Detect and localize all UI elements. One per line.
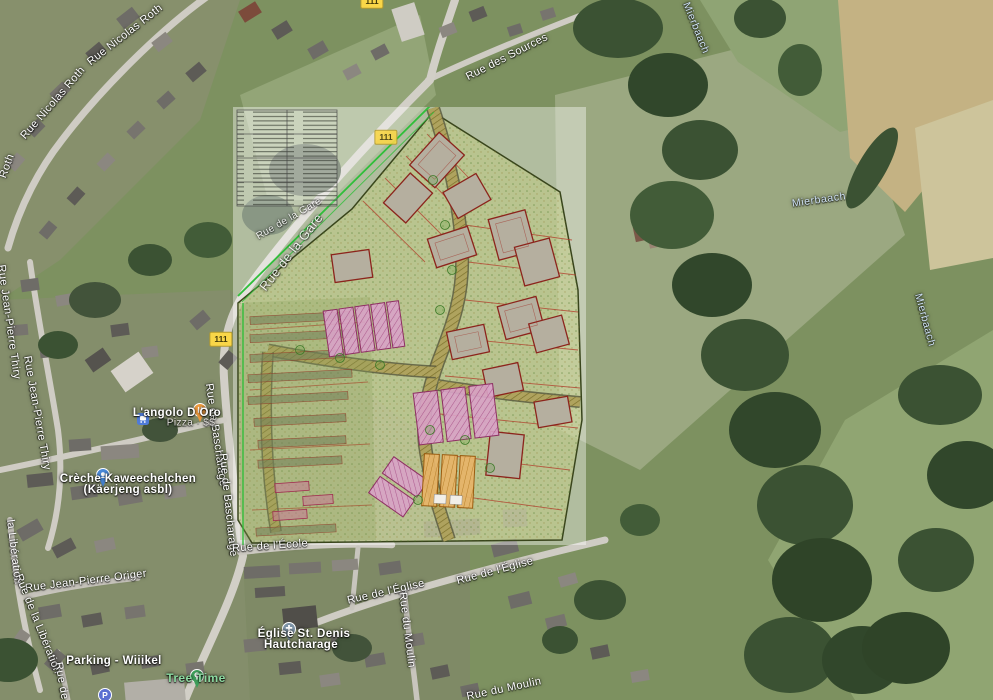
satellite-imagery bbox=[0, 0, 993, 700]
planned-buildings-orange bbox=[422, 454, 476, 509]
route-badge-111-top: 111 bbox=[360, 0, 383, 8]
svg-text:P: P bbox=[102, 690, 108, 700]
legend-table bbox=[237, 110, 337, 206]
satellite-map-canvas[interactable]: Rue Nicolas Roth Rue Nicolas Roth Roth R… bbox=[0, 0, 993, 700]
route-badge-111-low: 111 bbox=[209, 332, 232, 347]
route-badge-111-mid: 111 bbox=[374, 130, 397, 145]
